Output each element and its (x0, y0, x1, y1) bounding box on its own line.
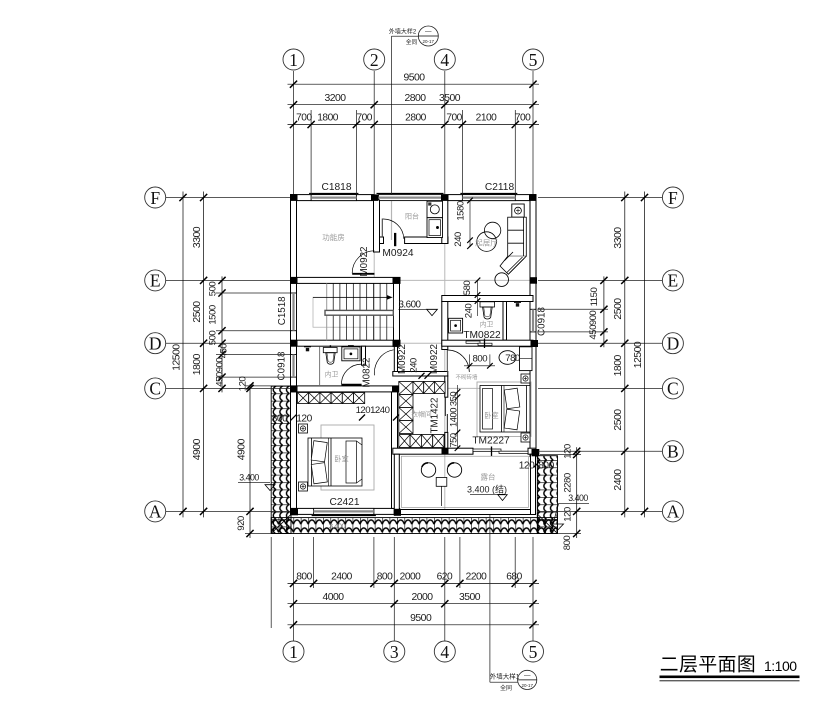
svg-text:2280: 2280 (563, 473, 574, 493)
svg-text:920: 920 (236, 516, 247, 531)
svg-text:二层平面图: 二层平面图 (660, 654, 756, 675)
svg-text:3300: 3300 (613, 227, 624, 249)
svg-text:800: 800 (272, 414, 288, 425)
svg-text:5: 5 (529, 50, 538, 70)
svg-text:全同: 全同 (500, 684, 512, 692)
svg-text:800: 800 (562, 536, 573, 551)
svg-text:A: A (667, 502, 680, 522)
svg-text:3200: 3200 (324, 93, 346, 104)
svg-text:E: E (668, 271, 679, 291)
svg-text:20-17: 20-17 (521, 683, 533, 688)
svg-text:C2118: C2118 (485, 182, 515, 193)
svg-text:12500: 12500 (633, 341, 644, 368)
svg-text:露台: 露台 (481, 472, 496, 482)
svg-text:起居厅: 起居厅 (475, 239, 498, 248)
svg-text:F: F (668, 188, 678, 208)
svg-text:TM2227: TM2227 (472, 436, 510, 447)
svg-text:不砌砖墙: 不砌砖墙 (455, 373, 478, 381)
svg-text:1: 1 (289, 642, 298, 662)
svg-text:D: D (149, 334, 162, 354)
svg-text:C2421: C2421 (329, 497, 359, 508)
svg-text:—: — (425, 28, 432, 35)
svg-text:M0924: M0924 (382, 248, 413, 259)
svg-text:240: 240 (453, 232, 464, 247)
svg-text:2100: 2100 (476, 112, 497, 123)
svg-text:450: 450 (215, 372, 226, 387)
svg-text:500: 500 (208, 282, 219, 297)
svg-text:3.400: 3.400 (568, 493, 588, 503)
svg-text:C: C (149, 379, 161, 399)
svg-text:1400: 1400 (448, 408, 459, 427)
svg-text:内卫: 内卫 (325, 370, 339, 379)
svg-text:—: — (524, 672, 531, 679)
svg-text:500: 500 (208, 331, 219, 346)
svg-text:M0922: M0922 (397, 344, 408, 374)
svg-text:2500: 2500 (192, 301, 203, 323)
svg-text:2000: 2000 (400, 572, 421, 583)
svg-text:580: 580 (462, 281, 473, 296)
svg-text:1: 1 (289, 50, 298, 70)
svg-text:2800: 2800 (404, 93, 426, 104)
svg-text:4: 4 (440, 50, 449, 70)
svg-text:3500: 3500 (439, 93, 461, 104)
svg-text:TM0822: TM0822 (463, 330, 501, 341)
svg-text:4000: 4000 (322, 592, 344, 603)
svg-text:2: 2 (370, 50, 379, 70)
svg-text:M0922: M0922 (429, 344, 440, 374)
svg-text:E: E (150, 271, 161, 291)
svg-text:1500: 1500 (208, 305, 219, 325)
svg-text:620: 620 (437, 572, 453, 583)
svg-text:800: 800 (473, 354, 488, 365)
svg-text:1580: 1580 (456, 201, 467, 221)
svg-text:750: 750 (448, 433, 459, 447)
svg-text:M0822: M0822 (362, 358, 373, 388)
svg-text:外墙大样2: 外墙大样2 (389, 28, 417, 36)
svg-text:3500: 3500 (459, 592, 481, 603)
svg-text:1150: 1150 (589, 288, 600, 307)
svg-text:680: 680 (506, 572, 522, 583)
svg-text:外墙大样1: 外墙大样1 (490, 672, 520, 681)
svg-text:120: 120 (563, 507, 574, 522)
svg-text:2000: 2000 (411, 592, 433, 603)
svg-text:2500: 2500 (613, 298, 624, 320)
svg-text:800: 800 (377, 572, 393, 583)
svg-text:1:100: 1:100 (764, 658, 797, 674)
svg-text:内卫: 内卫 (480, 320, 494, 329)
svg-text:2400: 2400 (613, 469, 624, 491)
svg-text:240: 240 (464, 304, 475, 319)
svg-text:C0918: C0918 (537, 307, 548, 336)
svg-text:3.400: 3.400 (239, 473, 259, 483)
svg-text:120: 120 (563, 444, 574, 459)
svg-text:800: 800 (538, 461, 554, 472)
svg-text:卧室: 卧室 (334, 455, 348, 464)
svg-text:450: 450 (588, 325, 599, 340)
svg-text:A: A (149, 502, 162, 522)
svg-text:C1518: C1518 (277, 296, 288, 325)
svg-text:3: 3 (390, 642, 399, 662)
svg-text:M0922: M0922 (359, 247, 370, 277)
svg-text:450: 450 (219, 344, 230, 359)
svg-text:780: 780 (505, 353, 520, 364)
svg-text:卧室: 卧室 (484, 411, 498, 420)
svg-text:700: 700 (296, 112, 312, 123)
svg-text:2400: 2400 (331, 572, 352, 583)
svg-text:700: 700 (446, 112, 462, 123)
svg-text:阳台: 阳台 (405, 212, 419, 221)
svg-text:9500: 9500 (410, 613, 432, 624)
svg-text:F: F (150, 188, 160, 208)
svg-text:240: 240 (409, 358, 420, 373)
svg-text:B: B (667, 442, 679, 462)
svg-text:350: 350 (448, 392, 459, 406)
svg-text:4900: 4900 (237, 438, 248, 460)
svg-text:1800: 1800 (613, 355, 624, 377)
svg-text:900: 900 (215, 358, 226, 373)
svg-text:功能房: 功能房 (322, 232, 345, 242)
svg-text:C: C (667, 379, 679, 399)
svg-text:120: 120 (519, 461, 535, 472)
svg-text:120: 120 (238, 377, 249, 392)
svg-text:4900: 4900 (192, 438, 203, 460)
svg-text:700: 700 (356, 112, 372, 123)
svg-text:800: 800 (296, 572, 312, 583)
svg-text:20-17: 20-17 (423, 39, 435, 44)
svg-text:2200: 2200 (466, 572, 487, 583)
svg-text:C1818: C1818 (321, 182, 351, 193)
svg-text:全同: 全同 (406, 38, 418, 46)
svg-text:3.400 (结): 3.400 (结) (467, 484, 507, 495)
svg-text:2800: 2800 (405, 112, 426, 123)
svg-text:3300: 3300 (192, 226, 203, 248)
svg-text:3.600: 3.600 (398, 300, 421, 311)
svg-text:120: 120 (296, 414, 312, 425)
svg-text:D: D (667, 334, 680, 354)
svg-text:1800: 1800 (192, 353, 203, 375)
svg-text:TM1422: TM1422 (430, 398, 441, 434)
svg-text:900: 900 (588, 311, 599, 326)
svg-text:700: 700 (515, 112, 531, 123)
svg-text:C0918: C0918 (277, 351, 288, 380)
svg-text:2500: 2500 (613, 409, 624, 431)
svg-text:3.400: 3.400 (329, 522, 346, 531)
svg-text:4: 4 (440, 642, 449, 662)
svg-text:1800: 1800 (317, 112, 338, 123)
svg-text:5: 5 (529, 642, 538, 662)
svg-text:12500: 12500 (172, 344, 183, 371)
svg-text:9500: 9500 (403, 73, 425, 84)
svg-text:1201240: 1201240 (356, 405, 390, 416)
